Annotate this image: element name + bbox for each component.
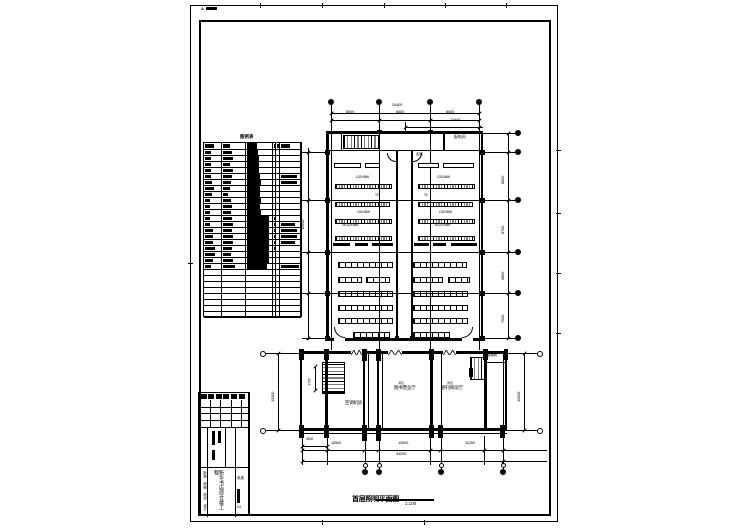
- dimension-text: 6800: [501, 272, 505, 280]
- column-marker: [362, 349, 367, 361]
- dimension-line: [508, 133, 509, 338]
- column-marker: [376, 349, 381, 361]
- room-label: 期刊阅览厅: [441, 386, 463, 391]
- dimension-text: 8400: [396, 110, 404, 114]
- grid-bubble: [515, 335, 522, 342]
- dimension-line: [524, 353, 525, 431]
- fold-tick: [445, 3, 446, 8]
- grid-bubble: [377, 463, 382, 468]
- grid-bubble: [328, 99, 335, 106]
- grid-bubble: [537, 428, 543, 434]
- column-marker: [325, 150, 330, 155]
- dimension-line: [405, 127, 483, 128]
- titleblock-mark: [218, 431, 221, 443]
- titleblock-mark: [212, 431, 215, 445]
- grid-bubble: [260, 428, 266, 434]
- grid-stem: [483, 338, 515, 339]
- grid-bubble: [376, 99, 383, 106]
- dimension-text: 10500: [331, 441, 341, 445]
- dimension-text: 2700: [308, 379, 312, 386]
- fixture-label: T5: [424, 194, 427, 197]
- column-marker: [299, 349, 304, 360]
- cad-sheet-view: A 图例表 2440080008400800012400800087006800…: [0, 0, 749, 530]
- dimension-text: 11200: [465, 441, 475, 445]
- column-marker: [325, 291, 330, 296]
- grid-bubble: [439, 463, 444, 468]
- fixture-label: 3×LD2×36W: [342, 224, 358, 227]
- grid-bubble: [427, 99, 434, 106]
- fixture-label: LD2×36W: [356, 176, 369, 179]
- room-label: 配电间: [454, 135, 465, 139]
- grid-bubble: [537, 351, 543, 357]
- lower-wall: [430, 351, 433, 430]
- desk-strip: [338, 291, 393, 297]
- column-marker: [325, 336, 330, 341]
- joint-wall: [382, 351, 384, 430]
- door-symbol: [351, 350, 362, 356]
- grid-bubble: [515, 130, 522, 137]
- room-label: 图书营业厅: [394, 386, 416, 391]
- dimension-tick: [313, 388, 317, 392]
- dimension-line: [302, 446, 327, 447]
- grid-bubble: [515, 290, 522, 297]
- titleblock-mark: [237, 489, 240, 503]
- joint-wall: [368, 351, 370, 430]
- titleblock-line: [225, 427, 226, 467]
- door-symbol: [388, 350, 402, 356]
- grid-bubble: [362, 469, 368, 475]
- titleblock-role-label: 校对: [201, 493, 207, 503]
- title-block-edge: [248, 392, 251, 516]
- stair-upper: [343, 135, 379, 149]
- desk-strip: [338, 262, 393, 268]
- joint-wall: [363, 351, 365, 430]
- dashed-wall: [414, 243, 429, 246]
- column-marker: [395, 336, 400, 341]
- corridor-wall: [396, 151, 398, 339]
- dimension-text: 12500: [398, 441, 408, 445]
- dimension-text: 13300: [517, 392, 521, 402]
- dimension-text: 8700: [501, 226, 505, 234]
- fold-tick: [556, 333, 561, 334]
- room-label: 走道: [416, 153, 423, 157]
- dimension-text: 4200: [306, 438, 313, 442]
- upper-left-wall: [326, 131, 329, 341]
- grid-stem: [483, 200, 515, 201]
- fixture-strip: [335, 236, 392, 241]
- grid-stem: [302, 200, 326, 201]
- dimension-line: [315, 366, 316, 390]
- titleblock-stage: 电施: [237, 477, 247, 483]
- fixture-strip: [418, 163, 439, 168]
- grid-stem: [302, 252, 326, 253]
- grid-line: [479, 132, 480, 350]
- fixture-strip: [418, 202, 473, 207]
- grid-ext: [266, 430, 302, 431]
- grid-bubble: [515, 249, 522, 256]
- lower-wall: [300, 351, 302, 430]
- dimension-text: 8000: [446, 110, 454, 114]
- grid-stem: [483, 152, 515, 153]
- dashed-wall: [333, 243, 350, 246]
- column-marker: [480, 150, 485, 155]
- titleblock-header-cell: [239, 394, 245, 399]
- titleblock-project-name: 新华书店综合楼工程: [214, 470, 223, 514]
- grid-line: [329, 252, 482, 253]
- fold-tick: [424, 520, 425, 525]
- room-label: 详见: [398, 382, 404, 385]
- desk-strip: [448, 277, 470, 283]
- grid-stem: [483, 252, 515, 253]
- stair-lower: [322, 362, 345, 393]
- fixture-strip: [334, 163, 361, 168]
- fixture-strip: [418, 184, 475, 189]
- dimension-text: 8000: [346, 110, 354, 114]
- grid-bubble: [260, 351, 266, 357]
- titleblock-mark: [212, 450, 215, 460]
- column-marker: [480, 336, 485, 341]
- fixture-strip: [418, 236, 475, 241]
- floor-plan: 2440080008400800012400800087006800750015…: [0, 0, 749, 530]
- dashed-wall: [355, 243, 368, 246]
- grid-line: [441, 353, 442, 470]
- fold-tick: [506, 3, 507, 8]
- grid-bubble: [476, 99, 483, 106]
- titleblock-role-label: 审核: [201, 482, 207, 492]
- dashed-wall: [372, 243, 393, 246]
- fixture-label: LD2×36W: [357, 211, 370, 214]
- joint-wall: [377, 351, 379, 430]
- desk-strip: [413, 318, 468, 324]
- titleblock-header-cell: [208, 394, 214, 399]
- title-block: 批准审核校对设计新华书店综合楼工程电施03: [198, 392, 250, 516]
- upper-bottom-wall: [326, 338, 483, 341]
- desk-strip: [366, 277, 390, 283]
- fold-tick: [260, 3, 261, 8]
- shaft-marker: [469, 368, 473, 377]
- desk-strip: [413, 291, 468, 297]
- fixture-label: LD2×36W: [437, 176, 450, 179]
- fixture-strip: [335, 202, 390, 207]
- fold-tick: [556, 213, 561, 214]
- column-marker: [480, 198, 485, 203]
- titleblock-role-label: 设计: [201, 504, 207, 514]
- dimension-text: 12400: [450, 118, 460, 122]
- fold-tick: [322, 520, 323, 525]
- column-marker: [325, 250, 330, 255]
- desk-strip: [413, 277, 443, 283]
- titleblock-line: [241, 400, 242, 427]
- grid-line: [503, 353, 504, 470]
- grid-bubble: [376, 469, 382, 475]
- stair-line: [322, 393, 345, 394]
- titleblock-header-cell: [223, 394, 229, 399]
- column-marker: [324, 349, 329, 360]
- fixture-strip: [365, 163, 380, 168]
- grid-bubble: [515, 149, 522, 156]
- inner-wall: [443, 133, 445, 150]
- desk-strip: [338, 305, 393, 311]
- canopy-line: [300, 433, 507, 434]
- titleblock-header-cell: [201, 394, 207, 399]
- room-label: 楼梯间: [487, 354, 497, 358]
- room-label: 详见: [447, 382, 453, 385]
- fold-tick: [384, 3, 385, 8]
- titleblock-role-label: 批准: [201, 471, 207, 481]
- dimension-line: [308, 148, 309, 340]
- dimension-line: [278, 353, 279, 431]
- fixture-strip: [335, 184, 392, 189]
- grid-stem: [483, 293, 515, 294]
- dimension-line: [302, 450, 547, 451]
- grid-line: [329, 200, 482, 201]
- desk-strip: [338, 318, 393, 324]
- column-marker: [504, 349, 508, 360]
- column-marker: [480, 250, 485, 255]
- desk-strip: [413, 262, 467, 268]
- fixture-label: LD2×36W: [439, 211, 452, 214]
- desk-strip: [353, 332, 390, 338]
- lower-bottom-wall: [300, 428, 507, 431]
- fold-tick: [322, 3, 323, 8]
- door-arc: [387, 153, 396, 162]
- dimension-text: 24400: [392, 103, 402, 107]
- desk-strip: [338, 277, 362, 283]
- column-marker: [429, 349, 434, 360]
- fold-tick: [188, 263, 193, 264]
- titleblock-line: [210, 400, 211, 427]
- titleblock-line: [220, 400, 221, 427]
- grid-bubble: [500, 469, 506, 475]
- grid-bubble: [363, 463, 368, 468]
- fixture-label: 3×LD2×36W: [434, 224, 450, 227]
- room-label: 空调机房: [345, 401, 362, 406]
- grid-stem: [302, 152, 326, 153]
- column-marker: [325, 198, 330, 203]
- grid-stem: [302, 338, 326, 339]
- door-symbol: [443, 350, 456, 356]
- dashed-wall: [451, 243, 477, 246]
- titleblock-header-cell: [216, 394, 222, 399]
- grid-bubble: [438, 469, 444, 475]
- desk-strip: [413, 332, 450, 338]
- dimension-text: 7500: [501, 315, 505, 323]
- grid-stem: [302, 293, 326, 294]
- desk-strip: [413, 305, 468, 311]
- dimension-text: 13300: [271, 392, 275, 402]
- titleblock-header-cell: [231, 394, 237, 399]
- fold-tick: [556, 150, 561, 151]
- fixture-label: T5: [375, 194, 378, 197]
- grid-ext: [266, 353, 302, 354]
- inner-wall: [328, 150, 481, 152]
- fixture-strip: [443, 163, 474, 168]
- titleblock-line: [231, 400, 232, 427]
- fold-tick: [556, 273, 561, 274]
- grid-stem: [483, 133, 515, 134]
- lower-top-wall: [300, 351, 507, 354]
- dimension-text: 8000: [501, 176, 505, 184]
- grid-bubble: [515, 197, 522, 204]
- inner-wall: [341, 133, 342, 150]
- titleblock-sheet-number: 03: [237, 506, 247, 512]
- titleblock-line: [235, 427, 236, 517]
- dashed-wall: [433, 243, 446, 246]
- drawing-scale: 1:100: [405, 501, 416, 506]
- grid-line: [331, 132, 332, 350]
- lower-wall: [505, 351, 507, 430]
- upper-right-wall: [481, 131, 484, 341]
- drawing-title-underline: [376, 499, 434, 501]
- column-marker: [480, 291, 485, 296]
- dimension-line: [302, 461, 547, 462]
- dimension-text: 15500: [301, 220, 305, 230]
- dimension-text: 34200: [396, 452, 406, 456]
